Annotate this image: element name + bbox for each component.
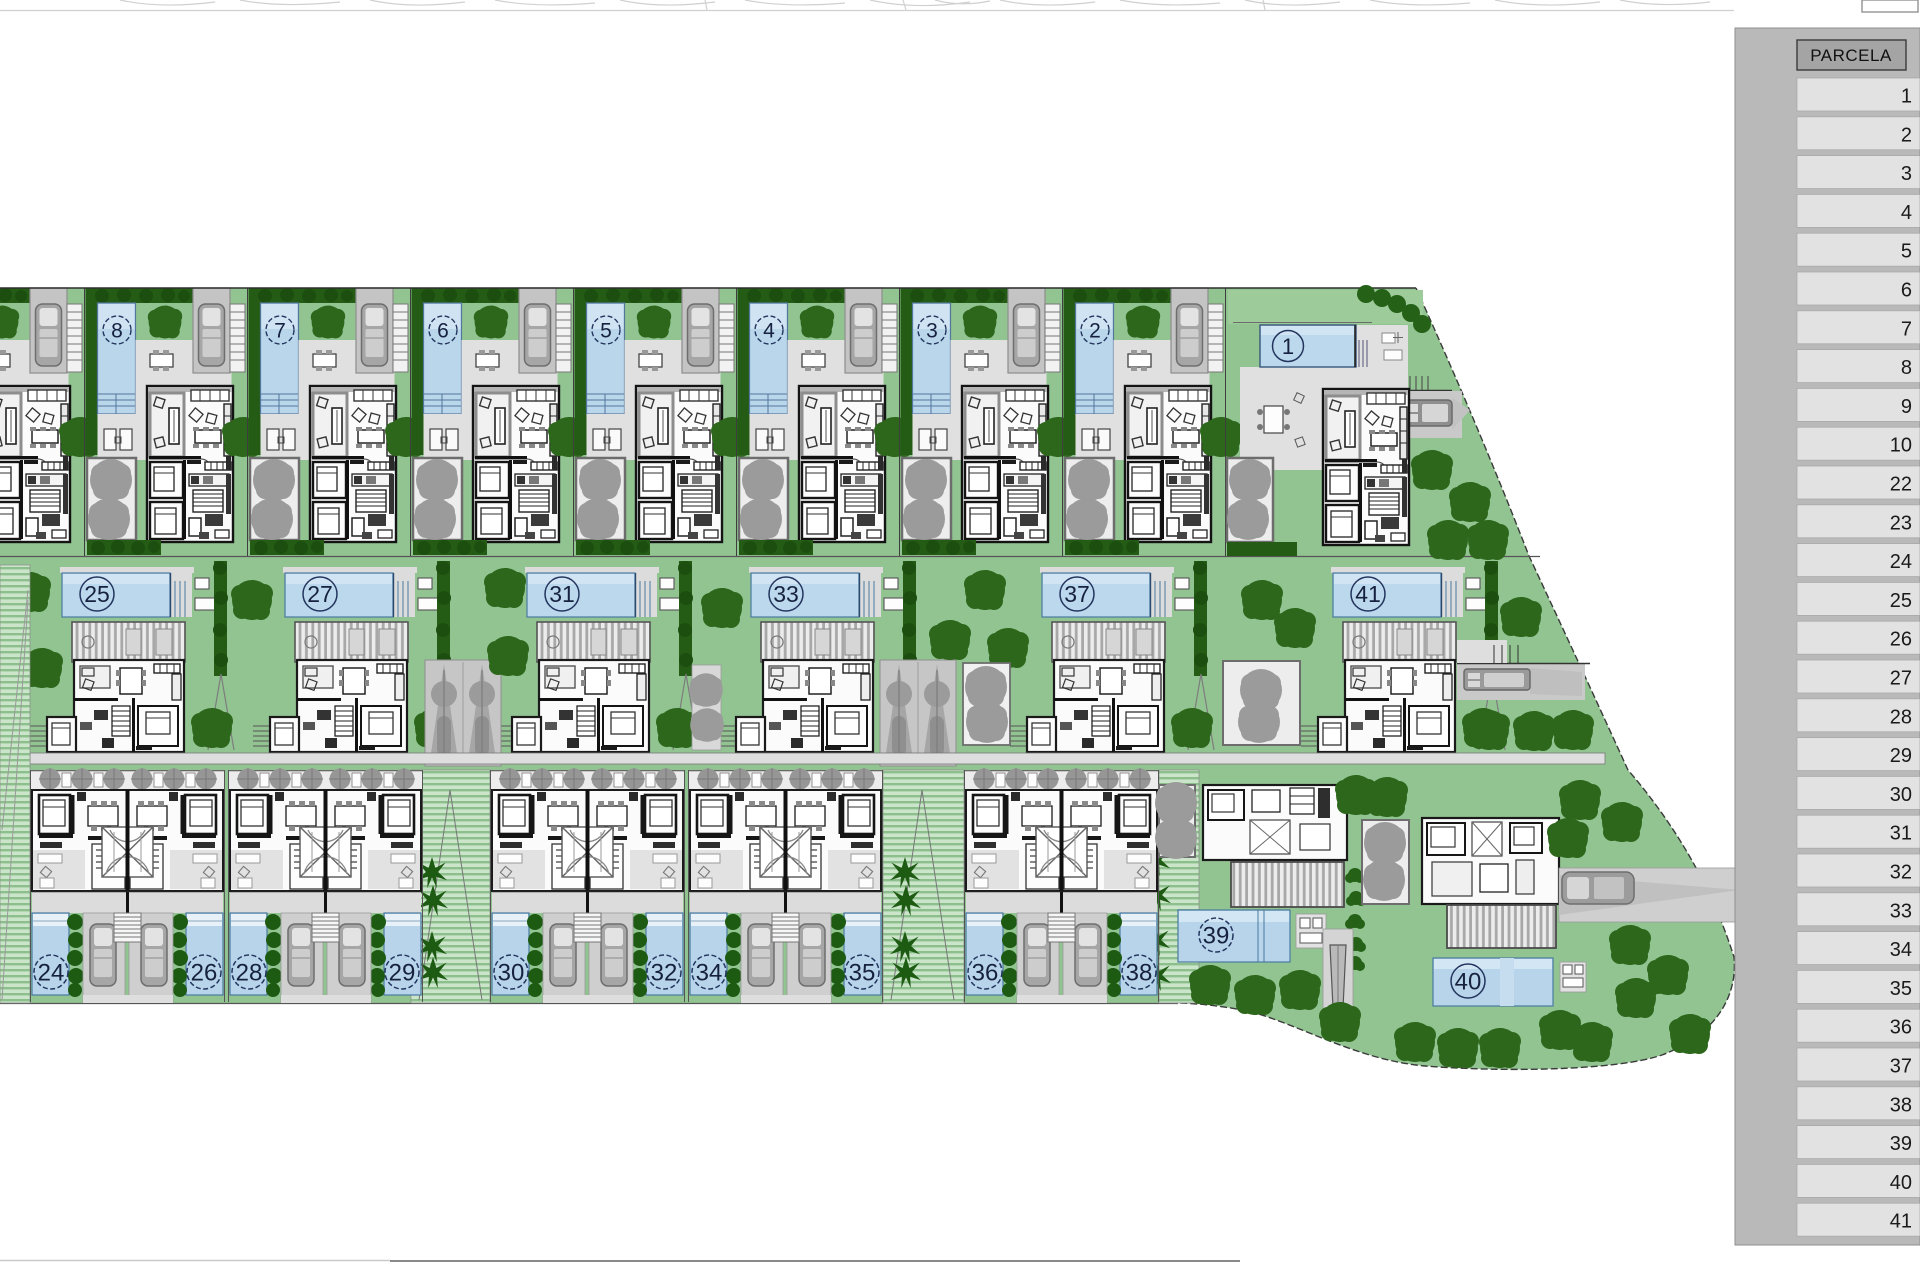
svg-text:2: 2 bbox=[1089, 320, 1101, 343]
svg-text:1: 1 bbox=[1901, 86, 1912, 108]
svg-text:24: 24 bbox=[1890, 551, 1912, 573]
svg-text:38: 38 bbox=[1890, 1094, 1912, 1116]
svg-text:36: 36 bbox=[972, 960, 999, 987]
svg-text:7: 7 bbox=[274, 320, 286, 343]
svg-text:26: 26 bbox=[1890, 629, 1912, 651]
svg-text:34: 34 bbox=[696, 960, 723, 987]
svg-text:29: 29 bbox=[1890, 745, 1912, 767]
svg-text:31: 31 bbox=[549, 581, 575, 607]
svg-text:40: 40 bbox=[1890, 1172, 1912, 1194]
svg-text:36: 36 bbox=[1890, 1017, 1912, 1039]
svg-text:31: 31 bbox=[1890, 823, 1912, 845]
svg-text:8: 8 bbox=[111, 320, 123, 343]
svg-text:27: 27 bbox=[1890, 668, 1912, 690]
svg-text:6: 6 bbox=[1901, 280, 1912, 302]
svg-text:35: 35 bbox=[849, 960, 876, 987]
svg-text:25: 25 bbox=[1890, 590, 1912, 612]
svg-text:30: 30 bbox=[1890, 784, 1912, 806]
svg-text:3: 3 bbox=[1901, 163, 1912, 185]
svg-text:26: 26 bbox=[191, 960, 218, 987]
svg-text:40: 40 bbox=[1455, 969, 1482, 996]
svg-text:39: 39 bbox=[1203, 923, 1230, 950]
svg-text:38: 38 bbox=[1126, 960, 1153, 987]
svg-text:7: 7 bbox=[1901, 318, 1912, 340]
svg-text:9: 9 bbox=[1901, 396, 1912, 418]
svg-text:41: 41 bbox=[1355, 581, 1381, 607]
svg-text:30: 30 bbox=[498, 960, 525, 987]
svg-text:8: 8 bbox=[1901, 357, 1912, 379]
svg-text:28: 28 bbox=[236, 960, 263, 987]
svg-text:37: 37 bbox=[1890, 1056, 1912, 1078]
svg-text:10: 10 bbox=[1890, 435, 1912, 457]
svg-text:37: 37 bbox=[1064, 581, 1090, 607]
svg-text:6: 6 bbox=[437, 320, 449, 343]
svg-text:1: 1 bbox=[1282, 334, 1294, 359]
svg-text:2: 2 bbox=[1901, 124, 1912, 146]
svg-text:5: 5 bbox=[1901, 241, 1912, 263]
svg-text:41: 41 bbox=[1890, 1211, 1912, 1233]
svg-text:34: 34 bbox=[1890, 939, 1912, 961]
svg-text:4: 4 bbox=[1901, 202, 1912, 224]
svg-text:39: 39 bbox=[1890, 1133, 1912, 1155]
svg-text:24: 24 bbox=[38, 960, 65, 987]
svg-text:27: 27 bbox=[307, 581, 333, 607]
svg-text:3: 3 bbox=[926, 320, 938, 343]
svg-text:35: 35 bbox=[1890, 978, 1912, 1000]
svg-text:33: 33 bbox=[1890, 900, 1912, 922]
svg-text:32: 32 bbox=[651, 960, 678, 987]
svg-text:28: 28 bbox=[1890, 706, 1912, 728]
svg-text:22: 22 bbox=[1890, 474, 1912, 496]
svg-text:PARCELA: PARCELA bbox=[1810, 46, 1892, 65]
svg-text:5: 5 bbox=[600, 320, 612, 343]
svg-text:23: 23 bbox=[1890, 512, 1912, 534]
svg-text:4: 4 bbox=[763, 320, 775, 343]
svg-text:32: 32 bbox=[1890, 862, 1912, 884]
svg-text:33: 33 bbox=[773, 581, 799, 607]
svg-text:25: 25 bbox=[84, 581, 110, 607]
svg-text:29: 29 bbox=[389, 960, 416, 987]
